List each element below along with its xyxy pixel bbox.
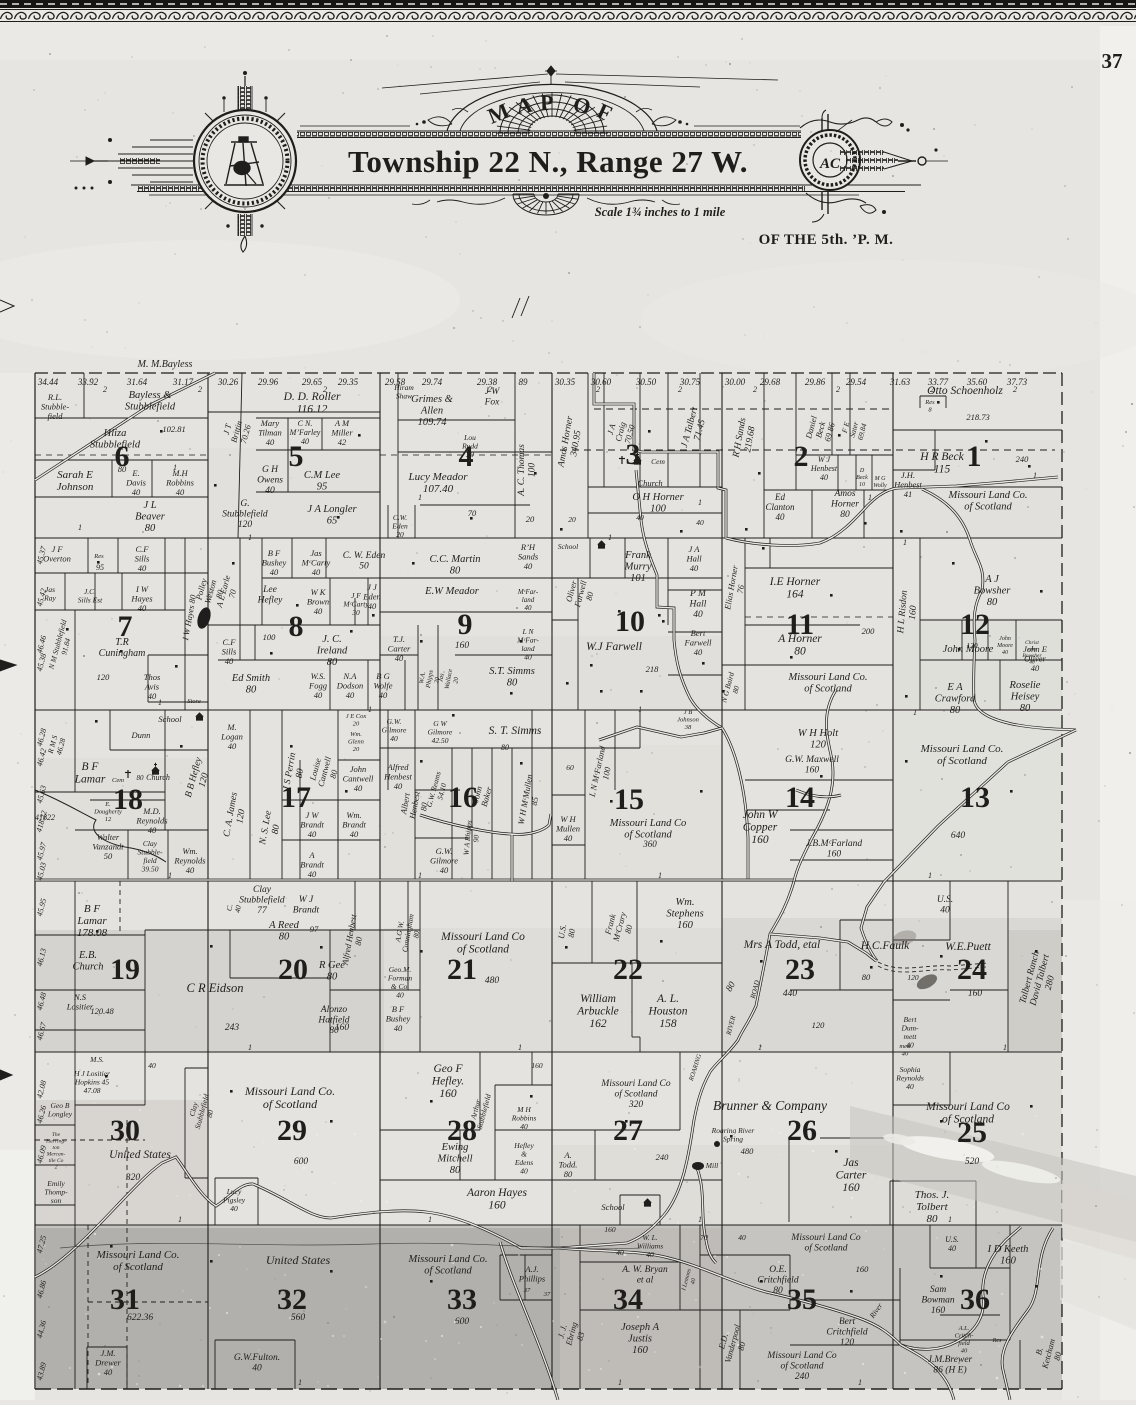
svg-text:1: 1 [698,1215,702,1224]
svg-text:200: 200 [862,626,876,636]
svg-text:40: 40 [696,518,704,527]
svg-text:1: 1 [618,1378,622,1387]
svg-text:70: 70 [468,508,477,518]
svg-text:1: 1 [178,1215,182,1224]
svg-text:622.36: 622.36 [127,1313,153,1323]
svg-text:30.35: 30.35 [554,377,576,387]
svg-text:1: 1 [168,871,172,880]
svg-text:OF THE 5th. ’P. M.: OF THE 5th. ’P. M. [759,232,894,248]
svg-text:120: 120 [907,973,919,982]
svg-text:23: 23 [785,953,815,986]
svg-text:560: 560 [291,1313,306,1323]
svg-text:243: 243 [225,1023,240,1033]
svg-text:1: 1 [948,1215,952,1224]
svg-text:Store: Store [187,698,201,705]
svg-text:20: 20 [568,515,576,524]
svg-text:30.50: 30.50 [635,377,657,387]
svg-text:29.74: 29.74 [422,377,443,387]
svg-text:Geo BLongley: Geo BLongley [47,1101,73,1119]
svg-text:2: 2 [753,385,757,394]
svg-text:Otto Schoenholz: Otto Schoenholz [927,385,1003,397]
svg-text:29.35: 29.35 [338,377,359,387]
svg-text:United States: United States [266,1253,331,1267]
svg-text:440: 440 [783,989,798,999]
svg-text:1: 1 [428,1215,432,1224]
svg-text:37: 37 [1102,49,1123,73]
svg-text:1: 1 [868,493,872,502]
svg-text:Cem: Cem [112,777,124,784]
svg-text:H.C.Faulk: H.C.Faulk [860,940,910,952]
svg-text:37: 37 [523,1287,531,1294]
svg-text:120: 120 [97,672,111,682]
svg-text:Scale 1¾ inches to 1 mile: Scale 1¾ inches to 1 mile [595,205,726,219]
svg-text:24: 24 [957,953,987,986]
svg-text:89: 89 [519,377,529,387]
svg-text:120.48: 120.48 [90,1006,114,1016]
svg-text:35: 35 [787,1283,817,1316]
svg-text:1: 1 [858,1378,862,1387]
svg-text:1: 1 [928,871,932,880]
svg-text:2: 2 [678,385,682,394]
svg-text:29.96: 29.96 [258,377,279,387]
svg-text:160: 160 [604,1225,616,1234]
svg-text:100: 100 [263,632,277,642]
svg-text:1: 1 [248,1043,252,1052]
svg-text:33.92: 33.92 [77,377,99,387]
svg-text:1: 1 [418,871,422,880]
svg-text:29.68: 29.68 [760,377,781,387]
svg-text:School: School [558,542,578,551]
svg-text:School: School [601,1202,625,1212]
svg-text:30.75: 30.75 [679,377,701,387]
svg-text:1: 1 [698,498,702,507]
svg-text:1: 1 [368,705,372,714]
svg-text:20: 20 [278,953,308,986]
svg-text:95: 95 [96,563,104,572]
svg-text:600: 600 [294,1157,309,1167]
svg-text:Res: Res [992,1338,1002,1344]
svg-text:1: 1 [173,463,177,472]
svg-text:1: 1 [248,533,252,542]
svg-text:14: 14 [785,781,815,814]
svg-text:360: 360 [642,839,657,849]
svg-text:Church: Church [637,478,662,488]
svg-text:1: 1 [518,1043,522,1052]
svg-text:1: 1 [638,705,642,714]
svg-text:160: 160 [455,641,470,651]
svg-text:80: 80 [862,972,871,982]
svg-text:80: 80 [137,774,145,782]
svg-text:Cem: Cem [651,457,665,466]
svg-text:M GWolly: M GWolly [873,476,887,489]
svg-text:1: 1 [608,533,612,542]
svg-text:1: 1 [967,440,982,473]
svg-text:Township 22 N., Range 27 W.: Township 22 N., Range 27 W. [348,144,748,179]
svg-text:C R Eidson: C R Eidson [187,981,244,995]
svg-text:40: 40 [636,513,644,522]
svg-text:Dunn: Dunn [131,730,151,740]
svg-text:30.60: 30.60 [590,377,612,387]
svg-text:520: 520 [965,1157,980,1167]
svg-text:29.54: 29.54 [846,377,867,387]
svg-text:31.63: 31.63 [889,377,911,387]
svg-text:13: 13 [960,781,990,814]
svg-text:20: 20 [526,514,535,524]
svg-text:Mrs A Todd, etal: Mrs A Todd, etal [743,939,820,951]
svg-text:2: 2 [103,385,107,394]
svg-text:2: 2 [1013,385,1017,394]
svg-text:J.M.Brewer86 (H E): J.M.Brewer86 (H E) [928,1355,973,1376]
svg-text:320: 320 [125,1173,141,1183]
svg-text:80: 80 [501,743,509,752]
svg-text:1: 1 [1003,1043,1007,1052]
svg-text:J WFox: J WFox [484,387,501,408]
svg-text:School: School [158,714,182,724]
svg-text:102.81: 102.81 [162,424,185,434]
svg-text:29.65: 29.65 [302,377,323,387]
svg-text:Bayless &Stubblefield: Bayless &Stubblefield [125,390,176,413]
svg-text:W.E.Puett: W.E.Puett [945,941,991,953]
svg-text:218: 218 [646,664,660,674]
svg-text:United States: United States [109,1149,171,1161]
svg-text:1: 1 [418,493,422,502]
svg-text:40: 40 [738,1233,746,1242]
svg-text:600: 600 [455,1317,470,1327]
svg-text:8: 8 [289,610,304,643]
svg-text:640: 640 [951,831,966,841]
svg-text:10: 10 [615,605,645,638]
svg-text:218.73: 218.73 [966,412,989,422]
svg-text:160: 160 [856,1264,870,1274]
svg-text:29.86: 29.86 [805,377,826,387]
svg-text:M. M.Bayless: M. M.Bayless [137,359,193,370]
svg-text:120: 120 [812,1020,826,1030]
svg-text:HiramShaw: HiramShaw [393,383,414,401]
svg-text:27: 27 [613,1114,643,1147]
svg-text:40: 40 [616,1248,624,1257]
svg-text:36: 36 [960,1283,990,1316]
svg-text:70: 70 [700,1233,708,1242]
svg-text:22: 22 [613,953,643,986]
svg-text:2: 2 [596,385,600,394]
svg-text:21: 21 [447,953,477,986]
svg-text:60: 60 [566,763,574,772]
svg-text:1: 1 [658,871,662,880]
svg-text:John Moore: John Moore [943,644,994,655]
svg-text:160: 160 [531,1061,543,1070]
svg-text:AC: AC [819,156,841,172]
svg-text:26: 26 [787,1114,817,1147]
svg-text:37: 37 [543,1291,551,1298]
svg-text:30.26: 30.26 [217,377,239,387]
svg-text:31: 31 [110,1283,140,1316]
svg-text:2: 2 [198,385,202,394]
svg-text:Mill: Mill [705,1161,719,1170]
svg-text:1: 1 [758,1043,762,1052]
svg-text:1: 1 [298,1378,302,1387]
svg-text:97: 97 [310,924,319,934]
svg-text:JasRay: JasRay [43,585,56,603]
svg-text:1: 1 [158,698,162,707]
svg-text:31.17: 31.17 [172,377,194,387]
svg-text:2: 2 [794,440,809,473]
svg-text:15: 15 [614,783,644,816]
svg-text:34: 34 [613,1283,643,1316]
svg-text:S. T. Simms: S. T. Simms [489,725,542,737]
svg-text:19: 19 [110,953,140,986]
svg-text:Brunner & Company: Brunner & Company [713,1098,827,1113]
svg-text:1: 1 [903,538,907,547]
svg-text:W.J Farwell: W.J Farwell [586,641,642,653]
svg-text:M.S.: M.S. [89,1055,104,1064]
svg-text:33: 33 [447,1283,477,1316]
svg-text:Sarah EJohnson: Sarah EJohnson [57,469,94,493]
svg-text:40: 40 [148,1061,156,1070]
svg-text:Res: Res [93,553,104,560]
svg-text:9: 9 [458,608,473,641]
svg-text:240: 240 [1016,454,1030,464]
svg-text:41822: 41822 [35,813,55,822]
svg-text:31.64: 31.64 [126,377,148,387]
svg-text:32: 32 [277,1283,307,1316]
svg-text:160: 160 [968,989,983,999]
svg-text:2: 2 [836,385,840,394]
svg-text:480: 480 [741,1146,755,1156]
svg-text:30.00: 30.00 [724,377,746,387]
svg-text:480: 480 [485,976,500,986]
svg-text:29: 29 [277,1114,307,1147]
svg-text:240: 240 [656,1152,670,1162]
svg-text:E.W Meador: E.W Meador [424,586,480,597]
svg-text:12: 12 [960,608,990,641]
svg-text:1: 1 [913,708,917,717]
svg-text:80: 80 [118,464,127,474]
svg-text:1: 1 [1033,471,1037,480]
svg-text:1: 1 [78,523,82,532]
svg-text:30: 30 [110,1114,140,1147]
svg-text:34.44: 34.44 [37,377,59,387]
